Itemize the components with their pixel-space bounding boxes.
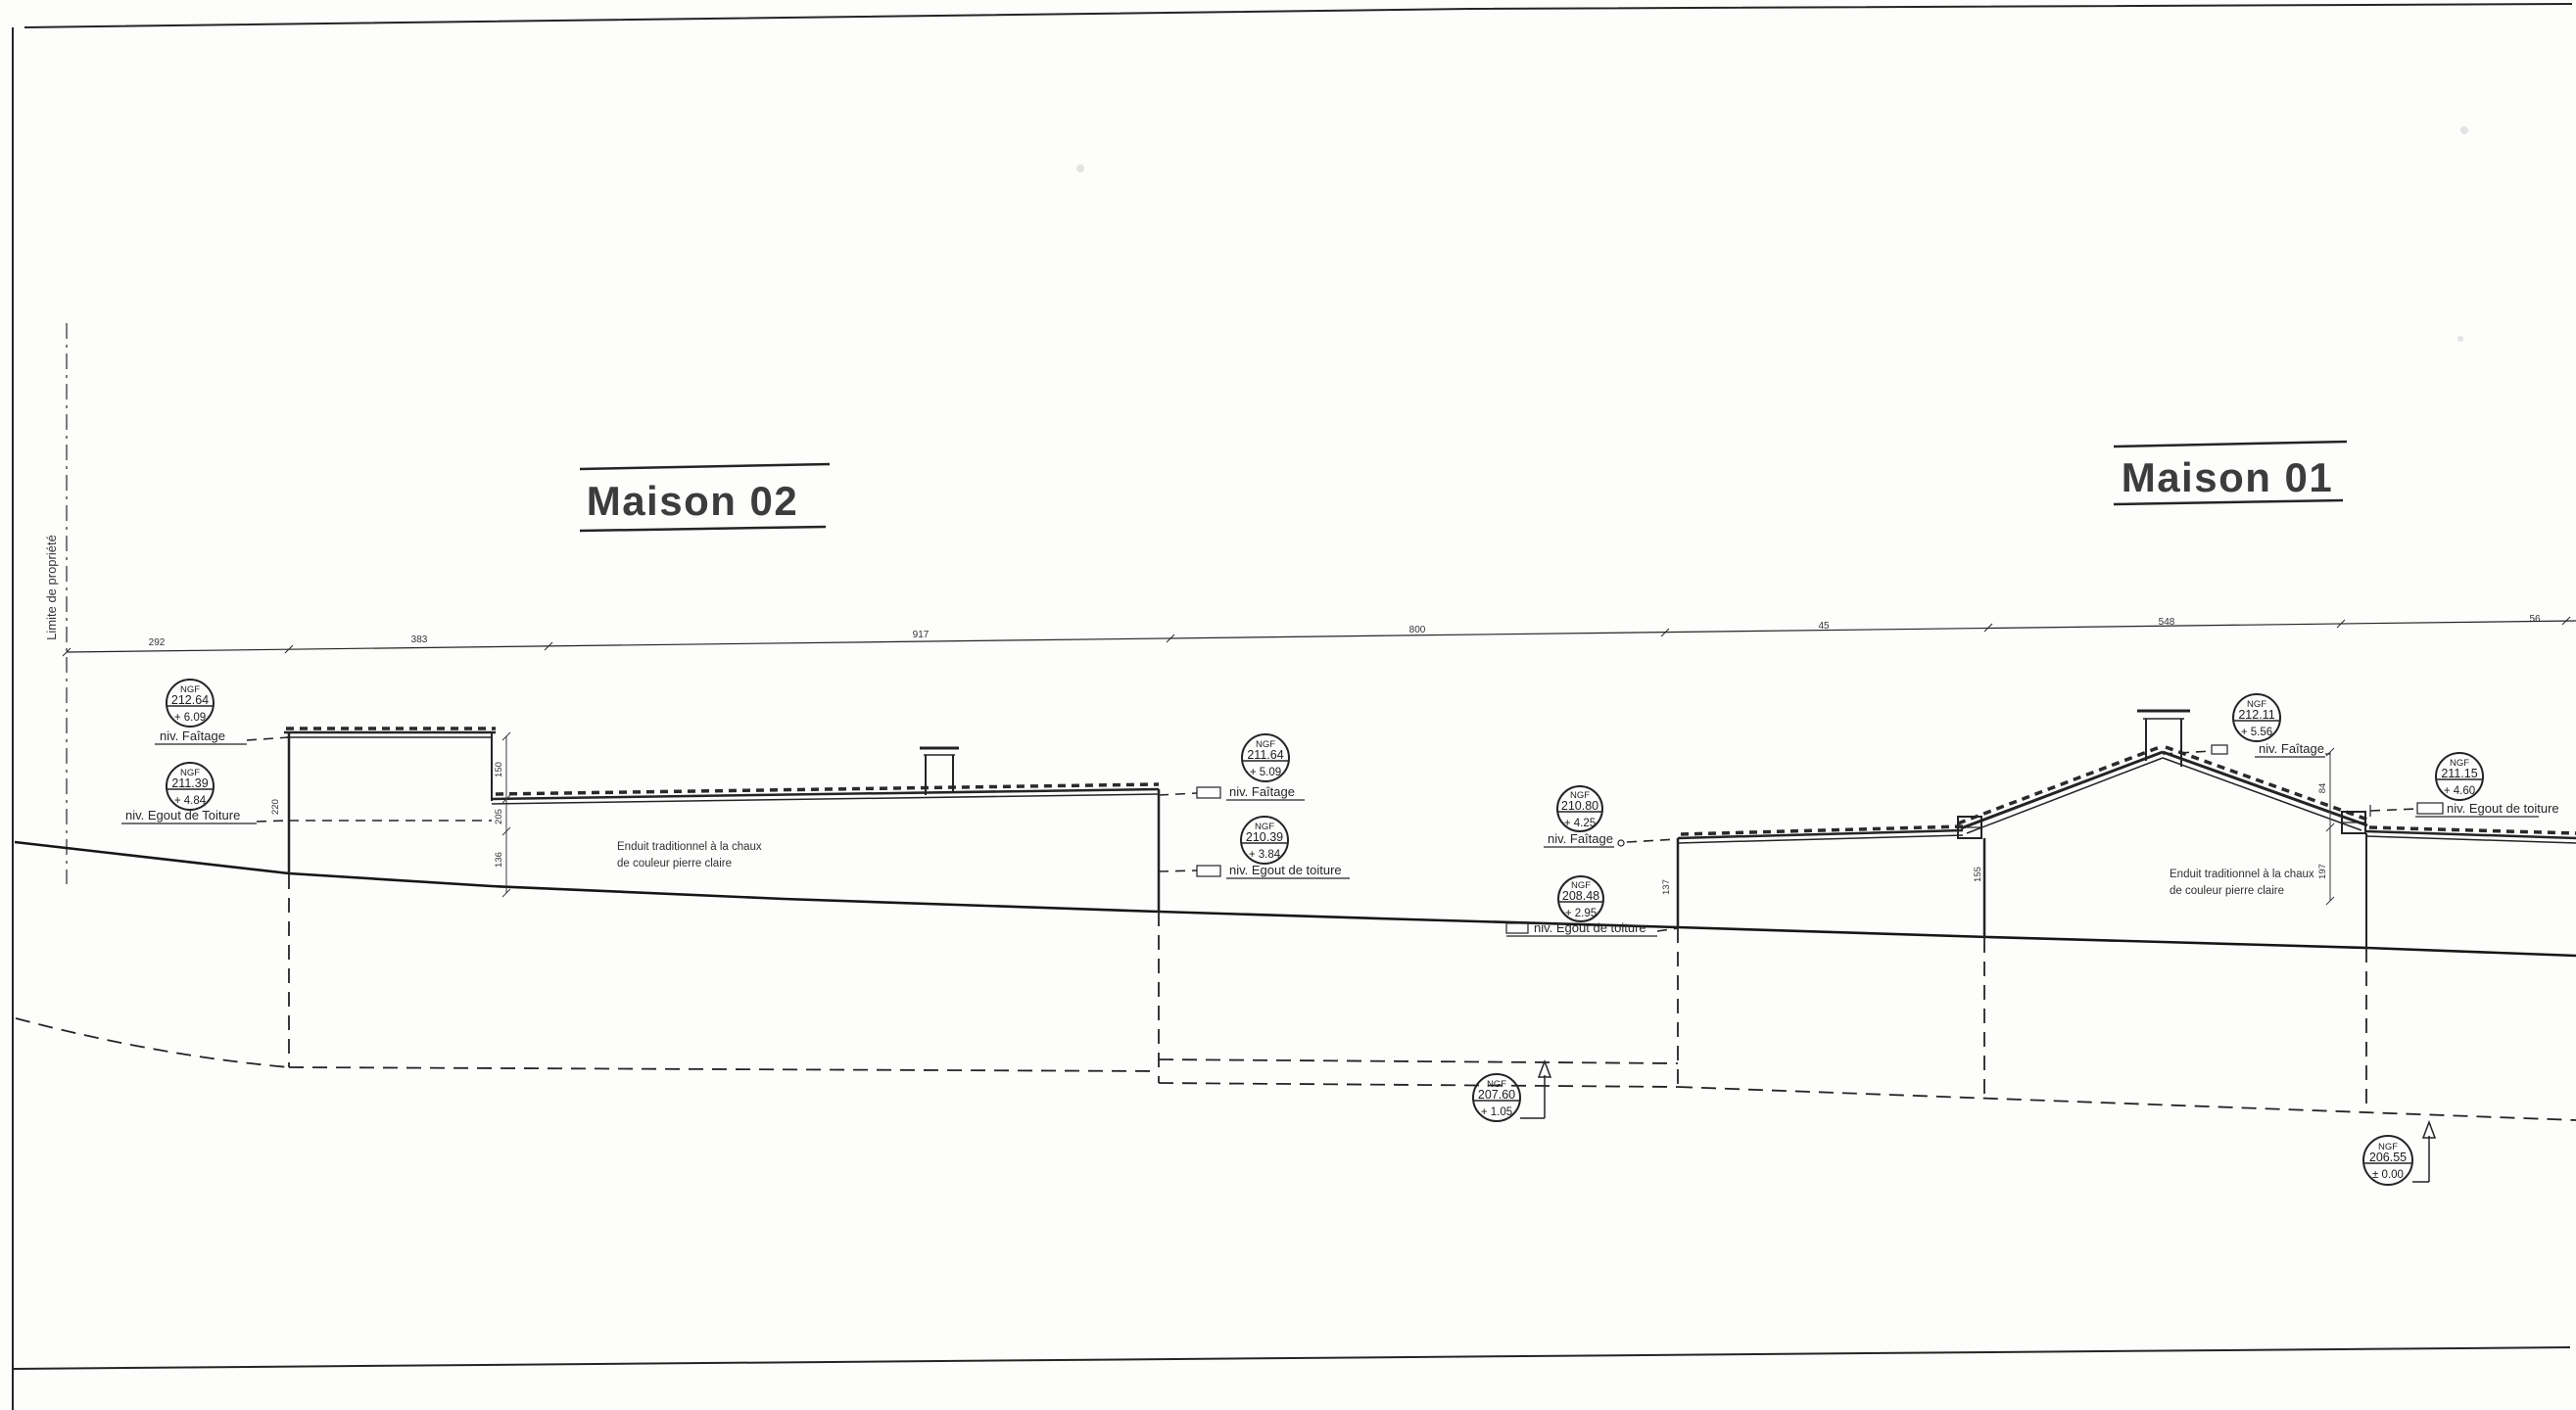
dim-84: 84 — [2317, 783, 2328, 794]
dim-45: 45 — [1818, 621, 1830, 632]
level-label: niv. Faîtage — [1548, 831, 1613, 846]
roof-tile-hatch — [496, 784, 1159, 794]
vertical-dimensions: 84 197 155 — [1973, 748, 2334, 905]
leader-box — [1197, 866, 1220, 876]
dim-205: 205 — [494, 809, 504, 824]
roof-tile-hatch-left — [1958, 747, 2160, 823]
border-bottom-line — [13, 1347, 2570, 1369]
relative-level: + 3.84 — [1249, 849, 1281, 861]
dim-56: 56 — [2529, 614, 2541, 625]
scan-speck — [1076, 164, 1084, 172]
arrow-up-icon — [1539, 1061, 1550, 1077]
relative-level: + 1.05 — [1481, 1106, 1512, 1118]
relative-level: + 4.25 — [1564, 818, 1596, 829]
level-marker-m01-faitage: NGF 212.11 + 5.56 niv. Faîtage — [2163, 694, 2330, 757]
level-label: niv. Egout de toiture — [1534, 920, 1646, 935]
title-overline — [2114, 442, 2347, 446]
ngf-value: 206.55 — [2369, 1151, 2407, 1164]
ngf-value: 210.39 — [1246, 830, 1283, 844]
scan-speck — [2457, 336, 2463, 342]
title-underline — [2114, 500, 2343, 504]
dim-548: 548 — [2159, 617, 2175, 628]
roof-left-inner — [1967, 758, 2163, 833]
property-limit: Limite de propriété — [44, 323, 67, 884]
level-label: niv. Faîtage — [2259, 741, 2324, 756]
dim-800: 800 — [1409, 625, 1426, 635]
dim-136: 136 — [494, 852, 504, 868]
level-label: niv. Egout de Toiture — [125, 808, 240, 822]
level-marker-mid-datum: NGF 207.60 + 1.05 — [1473, 1061, 1550, 1121]
elevation-drawing-sheet: Maison 02 Maison 01 Limite de propriété … — [0, 0, 2576, 1410]
roof-right-inner — [2163, 758, 2361, 830]
roof-tile-hatch-right — [2166, 747, 2370, 821]
level-label: niv. Egout de toiture — [1229, 863, 1342, 877]
m01-foundation-bottom — [1678, 1087, 2576, 1120]
leader-box — [2417, 803, 2443, 814]
level-marker-m01-datum: NGF 206.55 ± 0.00 — [2363, 1122, 2435, 1185]
title-maison01-text: Maison 01 — [2122, 454, 2334, 500]
wing-roof-inner-line — [492, 794, 1159, 804]
ngf-value: 207.60 — [1478, 1088, 1515, 1102]
facade-note-line1: Enduit traditionnel à la chaux — [617, 841, 762, 853]
relative-level: + 5.09 — [1250, 767, 1281, 778]
arrow-up-icon — [2423, 1122, 2435, 1138]
roof-right-slope — [2163, 752, 2367, 825]
foundation-dashed-lines — [16, 874, 2576, 1120]
terrain-line — [15, 842, 2576, 956]
facade-note-line2: de couleur pierre claire — [617, 858, 732, 869]
property-limit-label: Limite de propriété — [44, 535, 59, 640]
level-label: niv. Faîtage — [1229, 784, 1295, 799]
title-maison02-text: Maison 02 — [587, 478, 799, 524]
border-top-line — [24, 4, 2572, 27]
ngf-value: 212.64 — [171, 693, 209, 707]
ngf-value: 210.80 — [1561, 799, 1598, 813]
level-marker-m01-egout: NGF 211.15 + 4.60 niv. Egout de toiture — [2370, 753, 2559, 817]
dim-137: 137 — [1661, 879, 1672, 895]
dashed-lead-in — [16, 1018, 289, 1067]
mid-level-lower — [1159, 1083, 1678, 1087]
leader-box — [2212, 745, 2227, 754]
level-marker-m02wing-faitage: NGF 211.64 + 5.09 niv. Faîtage — [1159, 734, 1305, 800]
leader-dot — [1618, 840, 1624, 846]
maison02-building: Enduit traditionnel à la chaux de couleu… — [270, 728, 1159, 912]
roof-left-slope — [1961, 752, 2163, 828]
level-marker-m02wing-egout: NGF 210.39 + 3.84 niv. Egout de toiture — [1159, 817, 1350, 878]
dim-917: 917 — [913, 630, 930, 640]
relative-level: + 2.95 — [1565, 908, 1597, 919]
scan-speck — [2460, 126, 2468, 134]
level-marker-m02-egout: NGF 211.39 + 4.84 niv. Egout de Toiture — [121, 763, 289, 823]
facade-note-line2: de couleur pierre claire — [2170, 885, 2284, 897]
top-dimension-line: 292 383 917 800 45 548 56 — [63, 614, 2576, 656]
dim-383: 383 — [411, 634, 428, 645]
title-maison02: Maison 02 — [580, 464, 830, 531]
title-overline — [580, 464, 830, 469]
page-border — [13, 4, 2572, 1410]
ngf-value: 211.64 — [1247, 748, 1283, 762]
dim-220: 220 — [270, 799, 281, 815]
ngf-value: 211.15 — [2441, 767, 2477, 780]
gutter-right — [2342, 812, 2365, 833]
drawing-canvas: Maison 02 Maison 01 Limite de propriété … — [0, 0, 2576, 1410]
dim-150: 150 — [494, 762, 504, 777]
title-underline — [580, 527, 826, 531]
ngf-value: 208.48 — [1562, 889, 1599, 903]
level-label: niv. Egout de toiture — [2447, 801, 2559, 816]
leader-box — [1506, 923, 1528, 933]
mid-level-upper — [1159, 1059, 1678, 1063]
relative-level: + 4.60 — [2444, 785, 2475, 797]
level-label: niv. Faîtage — [160, 728, 225, 743]
level-marker-m02-faitage: NGF 212.64 + 6.09 niv. Faîtage — [155, 680, 289, 744]
link-section: 137 — [1661, 826, 1963, 927]
ngf-value: 212.11 — [2238, 708, 2274, 722]
dim-197: 197 — [2317, 864, 2328, 879]
level-marker-link-faitage: NGF 210.80 + 4.25 niv. Faîtage — [1544, 786, 1678, 847]
vertical-dimensions: 220 150 205 136 — [270, 732, 510, 897]
relative-level: ± 0.00 — [2372, 1169, 2404, 1181]
m02-foundation-bottom — [289, 1067, 1159, 1071]
relative-level: + 4.84 — [174, 795, 207, 807]
ngf-value: 211.39 — [171, 776, 208, 790]
facade-note-line1: Enduit traditionnel à la chaux — [2170, 869, 2314, 880]
relative-level: + 6.09 — [174, 712, 206, 724]
title-maison01: Maison 01 — [2114, 442, 2347, 504]
dim-155: 155 — [1973, 867, 1983, 882]
dimension-chain-line — [67, 621, 2576, 652]
dim-292: 292 — [149, 637, 166, 648]
relative-level: + 5.56 — [2241, 727, 2272, 738]
leader-box — [1197, 787, 1220, 798]
